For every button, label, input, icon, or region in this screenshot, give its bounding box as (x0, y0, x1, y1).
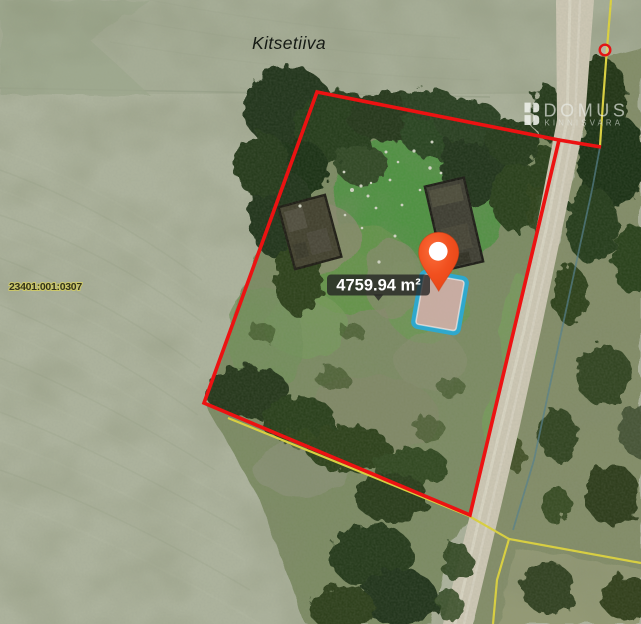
svg-text:KINNISVARA: KINNISVARA (545, 119, 624, 128)
svg-text:4759.94 m²: 4759.94 m² (336, 277, 421, 295)
svg-text:Kitsetiiva: Kitsetiiva (252, 33, 326, 53)
svg-text:23401:001:0307: 23401:001:0307 (9, 281, 82, 293)
svg-text:DOMUS: DOMUS (544, 101, 629, 121)
